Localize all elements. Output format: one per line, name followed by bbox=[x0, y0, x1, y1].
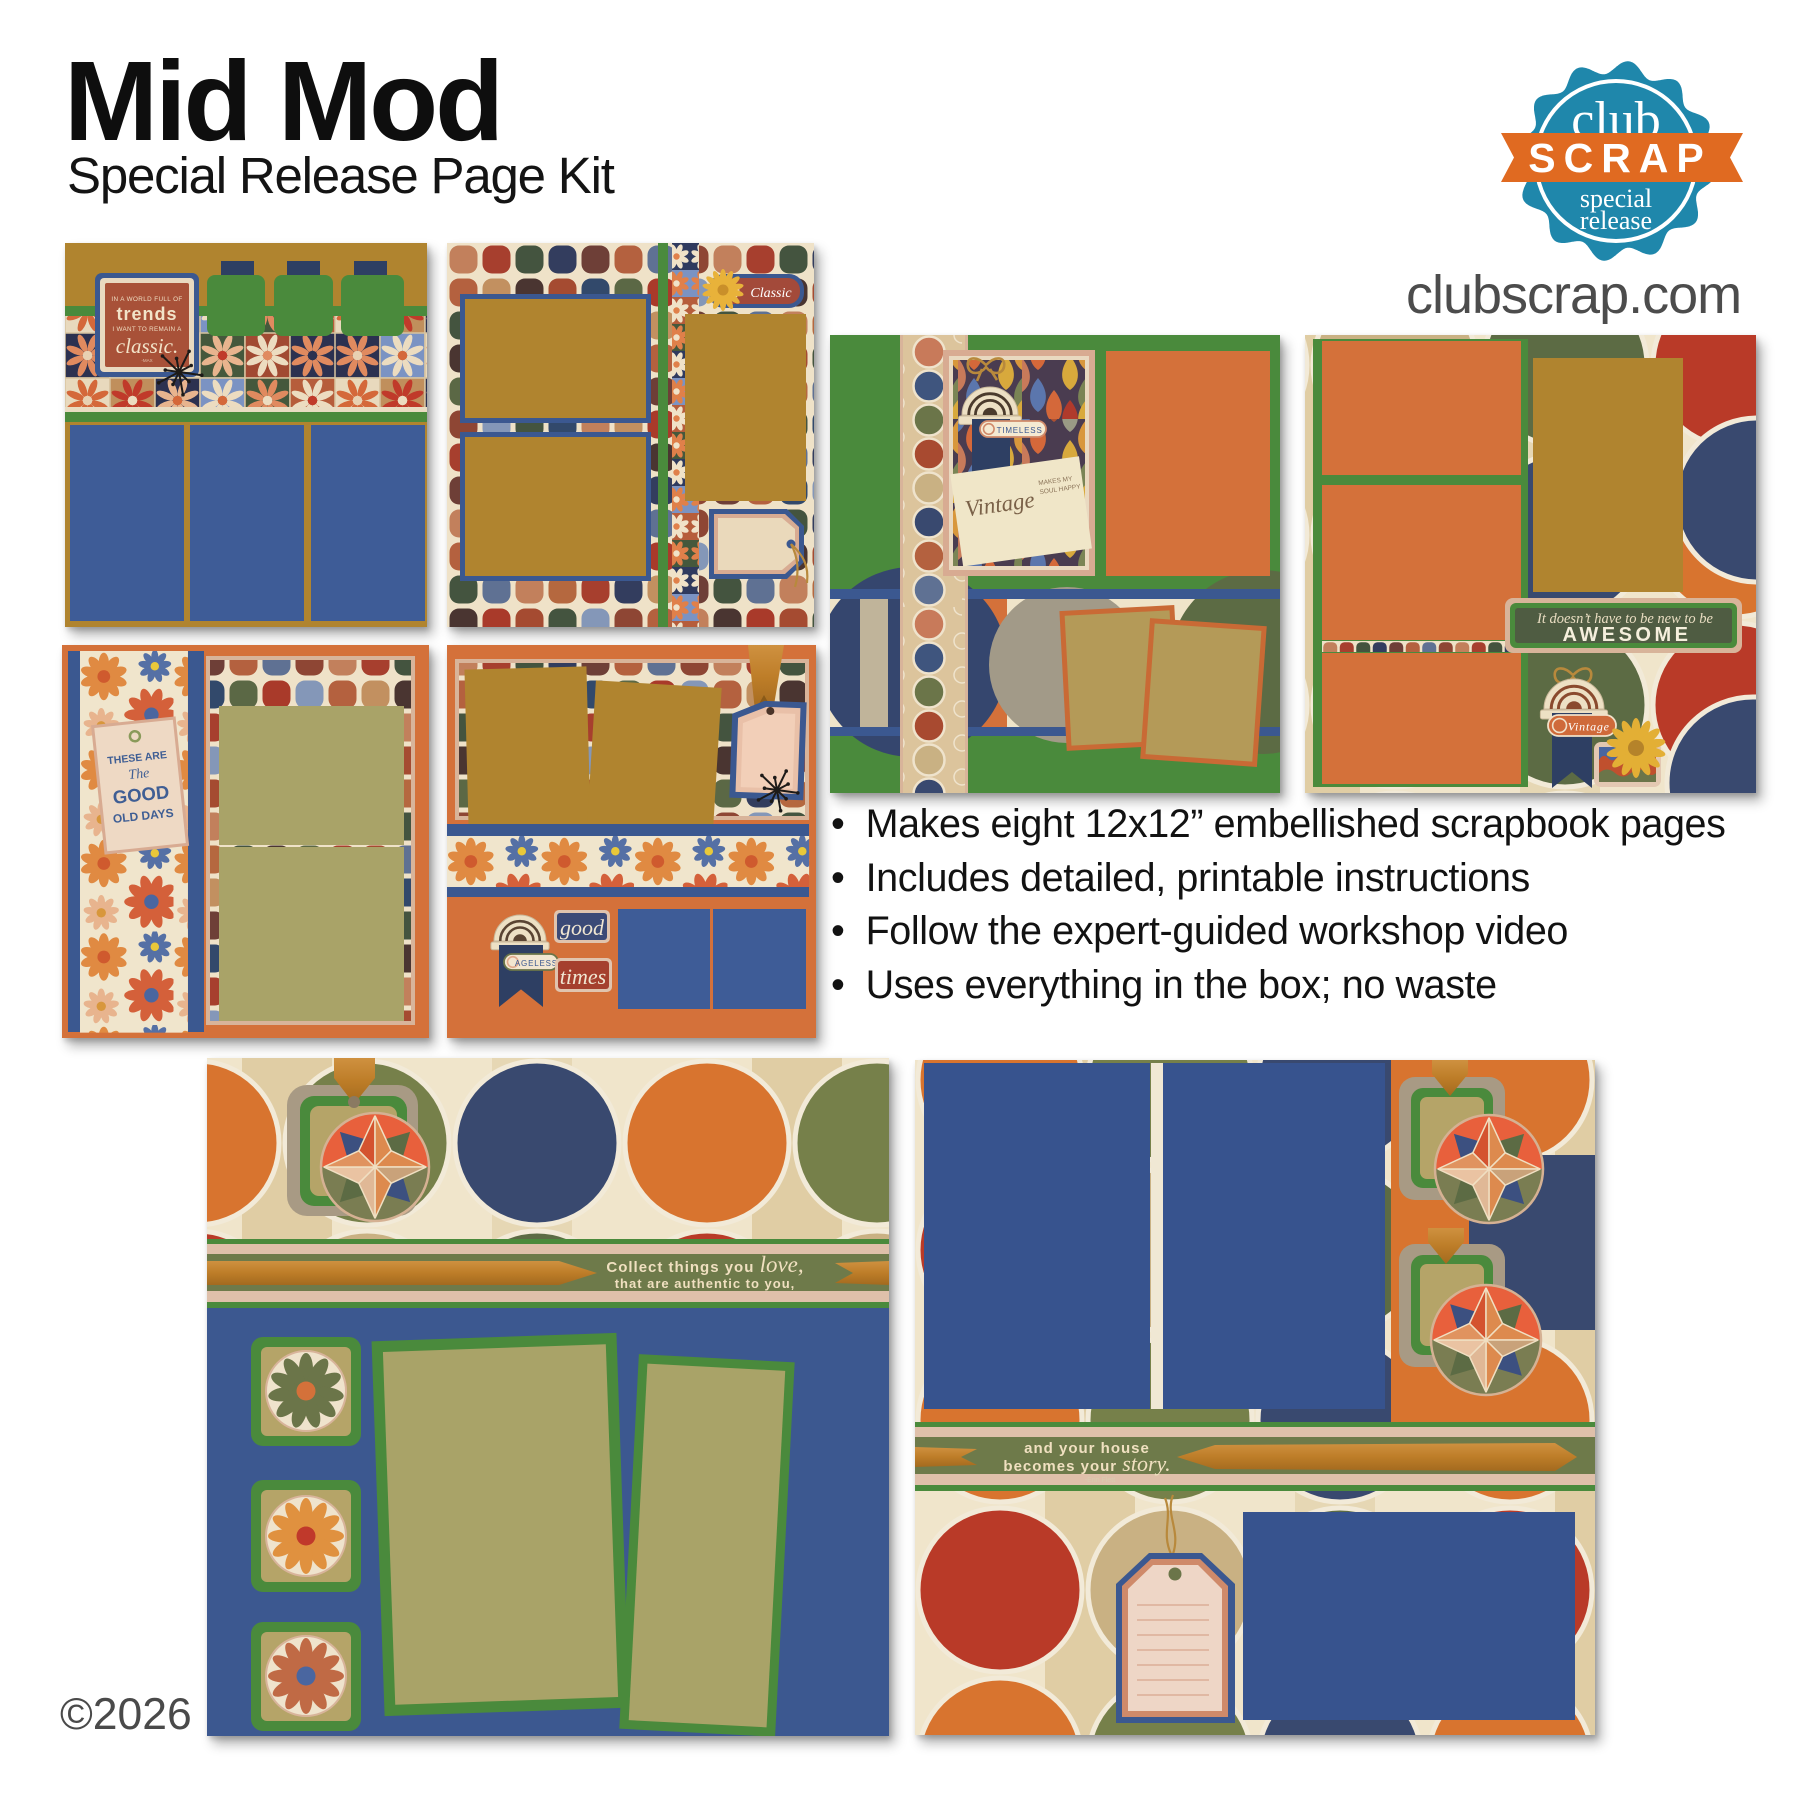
svg-text:IN A WORLD FULL OF: IN A WORLD FULL OF bbox=[111, 296, 182, 303]
svg-text:good: good bbox=[560, 915, 605, 940]
svg-text:-MAX: -MAX bbox=[141, 358, 152, 363]
svg-text:AWESOME: AWESOME bbox=[1563, 624, 1692, 646]
svg-text:classic.: classic. bbox=[116, 334, 178, 358]
svg-text:Classic: Classic bbox=[750, 286, 792, 301]
svg-text:release: release bbox=[1580, 206, 1652, 235]
svg-text:The: The bbox=[128, 766, 150, 783]
svg-text:AGELESS: AGELESS bbox=[515, 959, 558, 968]
svg-text:-Erin Flett: -Erin Flett bbox=[1085, 1477, 1115, 1484]
svg-text:that are authentic to you,: that are authentic to you, bbox=[615, 1276, 796, 1291]
svg-text:trends: trends bbox=[116, 304, 177, 324]
svg-text:times: times bbox=[560, 964, 606, 989]
svg-text:SCRAP: SCRAP bbox=[1528, 135, 1712, 181]
svg-text:I WANT TO REMAIN A: I WANT TO REMAIN A bbox=[112, 326, 182, 333]
svg-text:Vintage: Vintage bbox=[1568, 720, 1610, 734]
svg-text:TIMELESS: TIMELESS bbox=[997, 426, 1043, 435]
